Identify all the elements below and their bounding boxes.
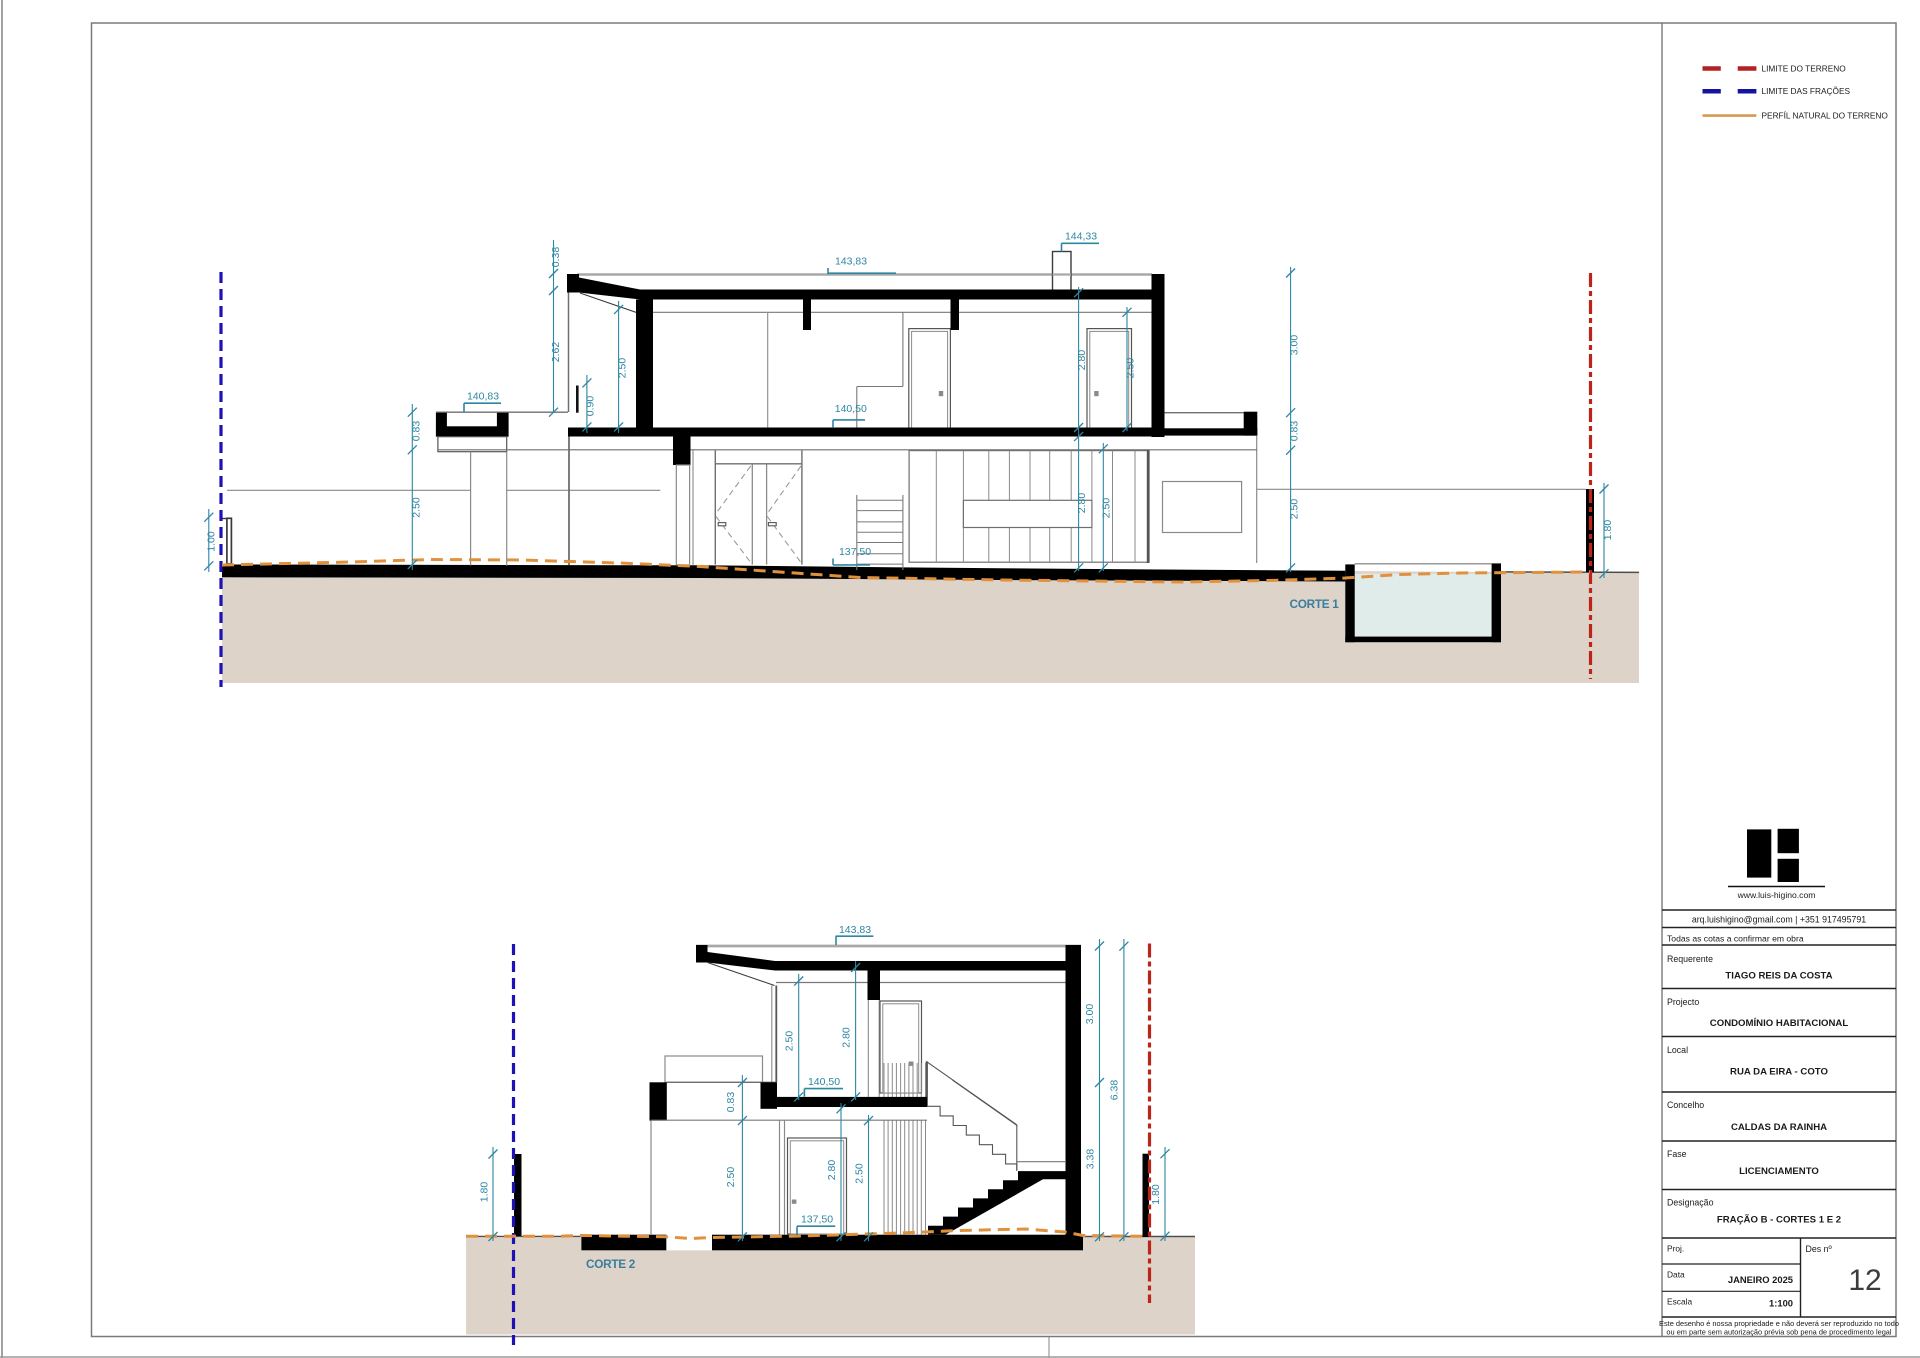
svg-text:137,50: 137,50 [839,546,871,558]
svg-text:2.50: 2.50 [411,497,423,518]
svg-text:Projecto: Projecto [1667,997,1699,1007]
svg-text:Proj.: Proj. [1667,1244,1684,1254]
svg-text:143,83: 143,83 [835,256,867,268]
svg-text:140,83: 140,83 [467,391,499,403]
svg-text:1.80: 1.80 [478,1182,490,1203]
svg-text:140,50: 140,50 [808,1076,840,1088]
svg-text:0.83: 0.83 [725,1092,737,1113]
svg-text:Local: Local [1667,1045,1688,1055]
svg-text:3.00: 3.00 [1289,335,1301,356]
svg-text:1.00: 1.00 [206,531,218,552]
svg-text:CALDAS DA RAINHA: CALDAS DA RAINHA [1731,1122,1827,1133]
svg-text:2.80: 2.80 [1076,350,1088,371]
svg-text:144,33: 144,33 [1065,231,1097,243]
svg-text:6.38: 6.38 [1109,1080,1121,1101]
svg-text:ou em parte sem autorização pr: ou em parte sem autorização prévia sob p… [1666,1328,1891,1337]
svg-text:2.80: 2.80 [1076,493,1088,514]
svg-text:2.50: 2.50 [1125,358,1137,379]
svg-text:Concelho: Concelho [1667,1100,1704,1110]
svg-text:2.50: 2.50 [854,1163,866,1184]
svg-text:0.90: 0.90 [584,396,596,417]
svg-text:2.62: 2.62 [550,342,562,363]
svg-text:0.38: 0.38 [550,247,562,268]
svg-text:1.80: 1.80 [1150,1184,1162,1205]
svg-text:FRAÇÃO B - CORTES 1 E 2: FRAÇÃO B - CORTES 1 E 2 [1717,1215,1841,1226]
svg-text:2.50: 2.50 [1289,499,1301,520]
svg-text:JANEIRO 2025: JANEIRO 2025 [1728,1274,1793,1285]
svg-text:1.80: 1.80 [1602,520,1614,541]
svg-text:0.83: 0.83 [411,421,423,442]
svg-text:CORTE 1: CORTE 1 [1290,597,1340,611]
svg-text:2.50: 2.50 [725,1167,737,1188]
svg-text:Requerente: Requerente [1667,954,1713,964]
svg-text:CONDOMÍNIO HABITACIONAL: CONDOMÍNIO HABITACIONAL [1710,1017,1849,1029]
svg-text:Fase: Fase [1667,1149,1687,1159]
svg-text:2.80: 2.80 [826,1160,838,1181]
svg-text:12: 12 [1848,1264,1881,1297]
svg-text:2.50: 2.50 [784,1031,796,1052]
svg-text:3.38: 3.38 [1084,1149,1096,1170]
svg-text:RUA DA EIRA - COTO: RUA DA EIRA - COTO [1730,1067,1828,1078]
svg-text:Escala: Escala [1667,1297,1692,1307]
svg-text:Data: Data [1667,1270,1685,1280]
svg-text:CORTE 2: CORTE 2 [586,1257,636,1271]
svg-text:LIMITE DO TERRENO: LIMITE DO TERRENO [1762,64,1847,74]
svg-text:LICENCIAMENTO: LICENCIAMENTO [1739,1166,1819,1177]
svg-text:2.50: 2.50 [1101,498,1113,519]
svg-text:Todas as cotas a confirmar em: Todas as cotas a confirmar em obra [1667,934,1804,944]
svg-text:Designação: Designação [1667,1198,1714,1208]
svg-text:143,83: 143,83 [839,924,871,936]
svg-text:LIMITE DAS FRAÇÕES: LIMITE DAS FRAÇÕES [1762,86,1851,96]
svg-text:www.luis-higino.com: www.luis-higino.com [1737,890,1816,900]
svg-text:Des nº: Des nº [1806,1244,1833,1254]
svg-text:arq.luishigino@gmail.com | +3: arq.luishigino@gmail.com | +351 91749579… [1692,915,1866,925]
svg-text:137,50: 137,50 [801,1214,833,1226]
svg-text:1:100: 1:100 [1769,1298,1793,1309]
svg-text:TIAGO REIS DA COSTA: TIAGO REIS DA COSTA [1725,971,1832,982]
svg-text:0.83: 0.83 [1289,421,1301,442]
svg-text:2.50: 2.50 [617,358,629,379]
svg-text:PERFÍL NATURAL DO TERRENO: PERFÍL NATURAL DO TERRENO [1762,111,1889,121]
svg-text:3.00: 3.00 [1084,1004,1096,1025]
svg-text:140,50: 140,50 [835,403,867,415]
svg-text:2.80: 2.80 [840,1027,852,1048]
